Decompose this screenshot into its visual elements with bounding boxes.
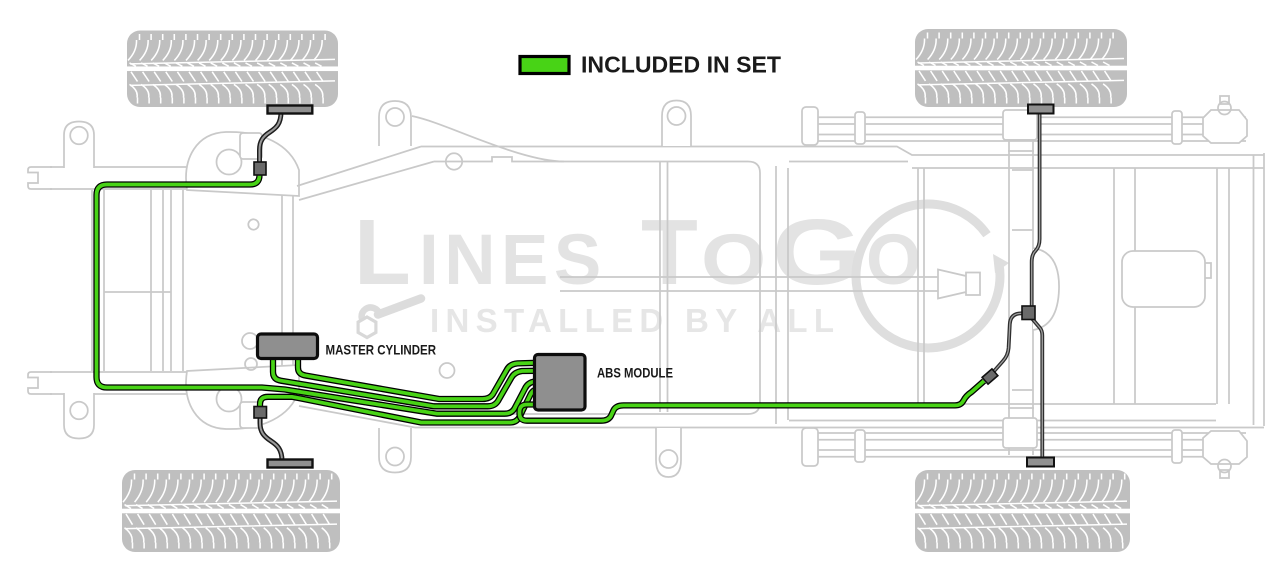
svg-text:ABS MODULE: ABS MODULE: [597, 366, 673, 381]
svg-text:INCLUDED IN SET: INCLUDED IN SET: [581, 52, 782, 78]
svg-text:L: L: [354, 200, 411, 304]
svg-text:INES: INES: [419, 221, 607, 300]
svg-text:INSTALLED BY ALL: INSTALLED BY ALL: [430, 302, 834, 339]
svg-text:O: O: [701, 221, 766, 300]
svg-text:MASTER CYLINDER: MASTER CYLINDER: [326, 343, 437, 358]
svg-text:T: T: [641, 200, 698, 304]
svg-text:G: G: [772, 200, 862, 304]
